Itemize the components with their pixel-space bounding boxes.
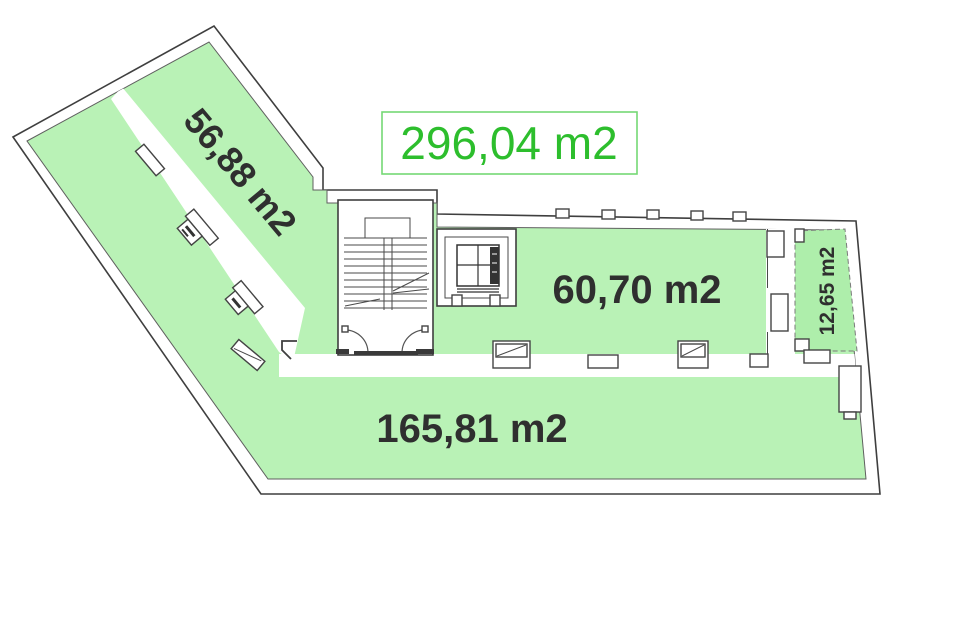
corridor-band-horizontal (279, 354, 857, 377)
duct-box-middle (771, 294, 788, 331)
elevator-foot-right (490, 295, 500, 306)
elevator-panel (490, 247, 499, 284)
duct-box-top (767, 231, 784, 257)
total-area-label: 296,04 m2 (400, 117, 617, 169)
wall-recess-notch (844, 412, 856, 419)
door-leaf-right (422, 326, 428, 332)
window-symbol-1 (493, 341, 530, 368)
floor-plan-page: 56,88 m2 60,70 m2 165,81 m2 12,65 m2 296… (0, 0, 960, 621)
room-label-side: 12,65 m2 (816, 247, 839, 336)
side-room-bump (804, 350, 830, 363)
window-symbol-2 (588, 355, 618, 368)
window-symbol-3 (678, 341, 708, 368)
elevator-foot-left (452, 295, 462, 306)
room-label-main: 165,81 m2 (376, 407, 567, 451)
floor-plan-canvas: 56,88 m2 60,70 m2 165,81 m2 12,65 m2 296… (0, 0, 960, 621)
side-room-notch-top (795, 229, 804, 242)
wall-recess (839, 366, 861, 412)
stairwell-block (338, 200, 433, 355)
side-room-notch-bottom (795, 339, 809, 351)
room-label-middle: 60,70 m2 (552, 268, 721, 312)
window-symbol-4 (750, 354, 768, 367)
door-leaf-left (342, 326, 348, 332)
